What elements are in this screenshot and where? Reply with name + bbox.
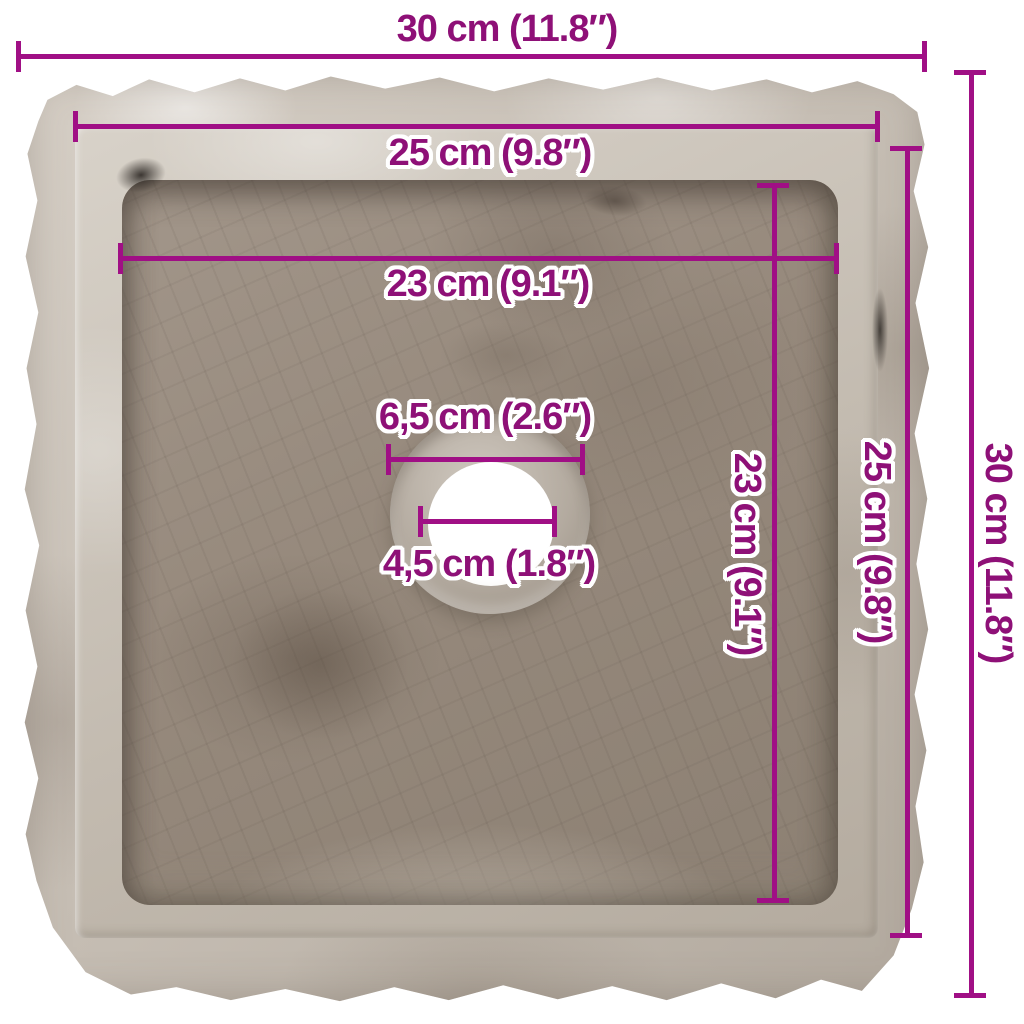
dim-basin-depth-line — [772, 185, 777, 901]
dim-outer-depth-line — [969, 72, 974, 996]
dim-drain-hole-label: 4,5 cm (1.8″) — [383, 545, 595, 583]
stone-stain — [440, 322, 570, 388]
dim-outer-width-tick-right — [922, 41, 927, 72]
dim-basin-width-tick-right — [834, 243, 839, 274]
dim-basin-width-line — [120, 256, 837, 261]
dim-drain-hole-tick-left — [418, 506, 423, 537]
dim-basin-depth-label: 23 cm (9.1″) — [728, 453, 766, 656]
stone-crack — [872, 288, 888, 372]
product-dimension-diagram: 30 cm (11.8″) 25 cm (9.8″) 23 cm (9.1″) … — [0, 0, 1024, 1024]
dim-basin-width-tick-left — [118, 243, 123, 274]
dim-rim-depth-label: 25 cm (9.8″) — [858, 441, 896, 644]
dim-drain-recess-tick-left — [386, 444, 391, 475]
dim-drain-recess-tick-right — [580, 444, 585, 475]
dim-basin-depth-tick-top — [757, 183, 789, 188]
dim-drain-recess-line — [388, 457, 583, 462]
dim-rim-width-tick-right — [875, 111, 880, 142]
dim-outer-depth-label: 30 cm (11.8″) — [979, 443, 1017, 664]
dim-outer-width-line — [18, 54, 927, 59]
dim-rim-depth-tick-top — [890, 146, 922, 151]
dim-drain-hole-line — [420, 519, 557, 524]
dim-basin-depth-tick-bottom — [757, 898, 789, 903]
dim-basin-width-label: 23 cm (9.1″) — [387, 265, 590, 303]
dim-drain-hole-tick-right — [552, 506, 557, 537]
dim-rim-depth-tick-bottom — [890, 933, 922, 938]
dim-outer-width-label: 30 cm (11.8″) — [397, 10, 618, 48]
dim-rim-width-label: 25 cm (9.8″) — [389, 134, 592, 172]
dim-drain-recess-label: 6,5 cm (2.6″) — [379, 398, 591, 436]
dim-rim-depth-line — [905, 149, 910, 936]
dim-outer-depth-tick-top — [954, 70, 986, 75]
dim-rim-width-line — [75, 124, 878, 129]
dim-outer-depth-tick-bottom — [954, 993, 986, 998]
dim-outer-width-tick-left — [16, 41, 21, 72]
dim-rim-width-tick-left — [73, 111, 78, 142]
stone-stain — [232, 588, 408, 740]
